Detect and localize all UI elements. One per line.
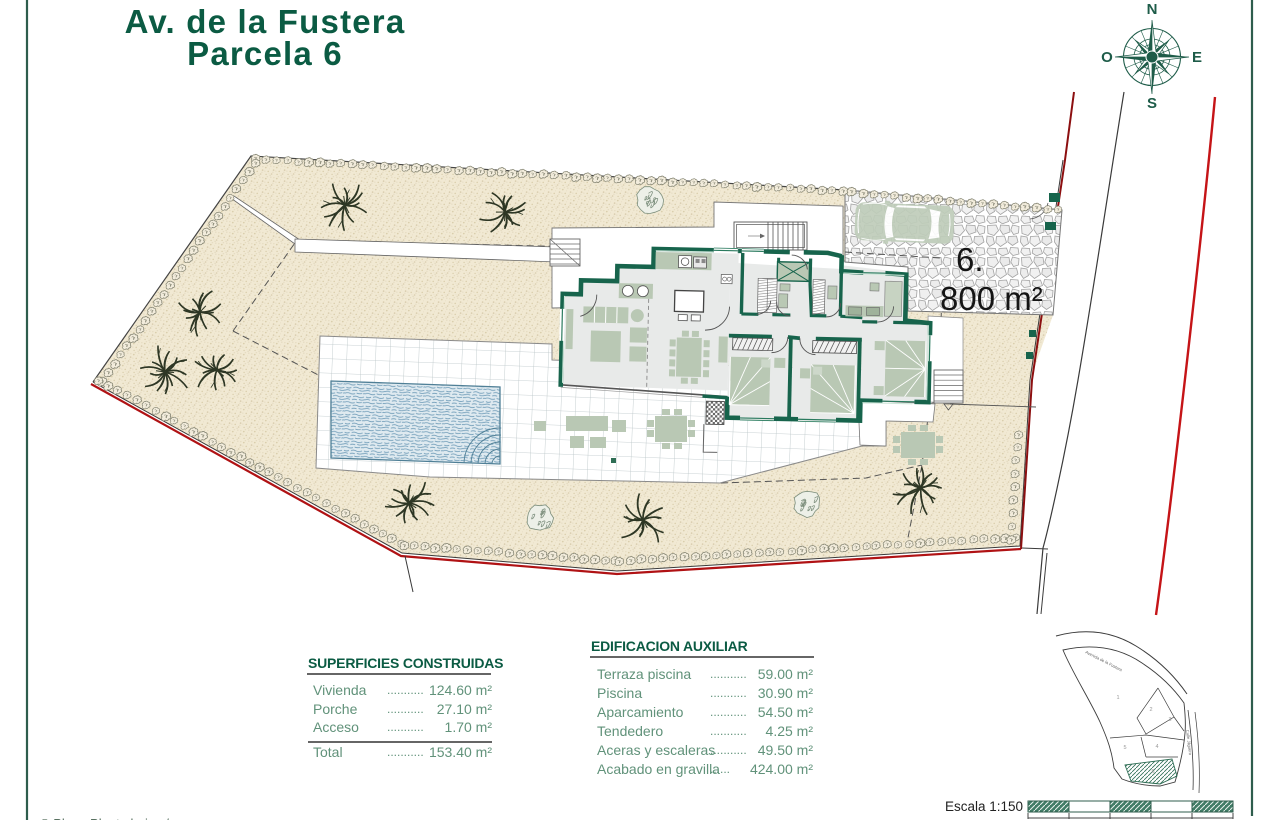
svg-text:30.90 m²: 30.90 m² xyxy=(758,685,814,701)
svg-text:E: E xyxy=(1192,49,1202,66)
svg-text:...........: ........... xyxy=(387,702,424,716)
svg-text:Porche: Porche xyxy=(313,701,358,717)
svg-text:......: ...... xyxy=(710,762,730,776)
svg-text:Aceras y escaleras: Aceras y escaleras xyxy=(597,742,715,758)
svg-text:...........: ........... xyxy=(710,686,747,700)
svg-text:...........: ........... xyxy=(710,724,747,738)
svg-text:...........: ........... xyxy=(387,683,424,697)
svg-text:O: O xyxy=(1101,49,1113,66)
svg-text:© Plano Planta baja s/n: © Plano Planta baja s/n xyxy=(40,816,176,820)
svg-text:27.10 m²: 27.10 m² xyxy=(437,701,493,717)
svg-text:Escala 1:150: Escala 1:150 xyxy=(945,799,1023,814)
svg-text:3: 3 xyxy=(1168,717,1171,723)
svg-text:SUPERFICIES CONSTRUIDAS: SUPERFICIES CONSTRUIDAS xyxy=(308,655,503,671)
svg-text:Acceso: Acceso xyxy=(313,719,359,735)
svg-text:Tendedero: Tendedero xyxy=(597,723,663,739)
svg-text:...........: ........... xyxy=(710,705,747,719)
svg-text:6.: 6. xyxy=(956,241,984,278)
svg-text:1.70 m²: 1.70 m² xyxy=(445,719,493,735)
svg-text:...........: ........... xyxy=(387,720,424,734)
svg-text:2: 2 xyxy=(1149,707,1152,713)
svg-text:Acabado en gravilla: Acabado en gravilla xyxy=(597,761,720,777)
svg-text:...........: ........... xyxy=(710,667,747,681)
svg-text:5: 5 xyxy=(1123,745,1126,751)
svg-text:59.00 m²: 59.00 m² xyxy=(758,666,814,682)
svg-text:N: N xyxy=(1147,1,1158,18)
svg-text:Piscina: Piscina xyxy=(597,685,642,701)
svg-text:54.50 m²: 54.50 m² xyxy=(758,704,814,720)
svg-text:EDIFICACION AUXILIAR: EDIFICACION AUXILIAR xyxy=(591,638,748,654)
svg-text:424.00 m²: 424.00 m² xyxy=(750,761,813,777)
svg-text:...........: ........... xyxy=(710,743,747,757)
svg-text:Parcela 6: Parcela 6 xyxy=(187,35,343,72)
svg-text:49.50 m²: 49.50 m² xyxy=(758,742,814,758)
svg-text:124.60 m²: 124.60 m² xyxy=(429,682,492,698)
svg-text:Vivienda: Vivienda xyxy=(313,682,367,698)
svg-text:Total: Total xyxy=(313,744,343,760)
svg-text:6: 6 xyxy=(1151,769,1154,775)
svg-text:4.25 m²: 4.25 m² xyxy=(766,723,814,739)
svg-text:...........: ........... xyxy=(387,745,424,759)
svg-text:S: S xyxy=(1147,95,1157,112)
svg-text:4: 4 xyxy=(1155,744,1158,750)
svg-text:800 m²: 800 m² xyxy=(940,280,1043,317)
svg-text:Terraza piscina: Terraza piscina xyxy=(597,666,691,682)
svg-text:1: 1 xyxy=(1116,695,1119,701)
svg-text:153.40 m²: 153.40 m² xyxy=(429,744,492,760)
svg-text:Aparcamiento: Aparcamiento xyxy=(597,704,684,720)
